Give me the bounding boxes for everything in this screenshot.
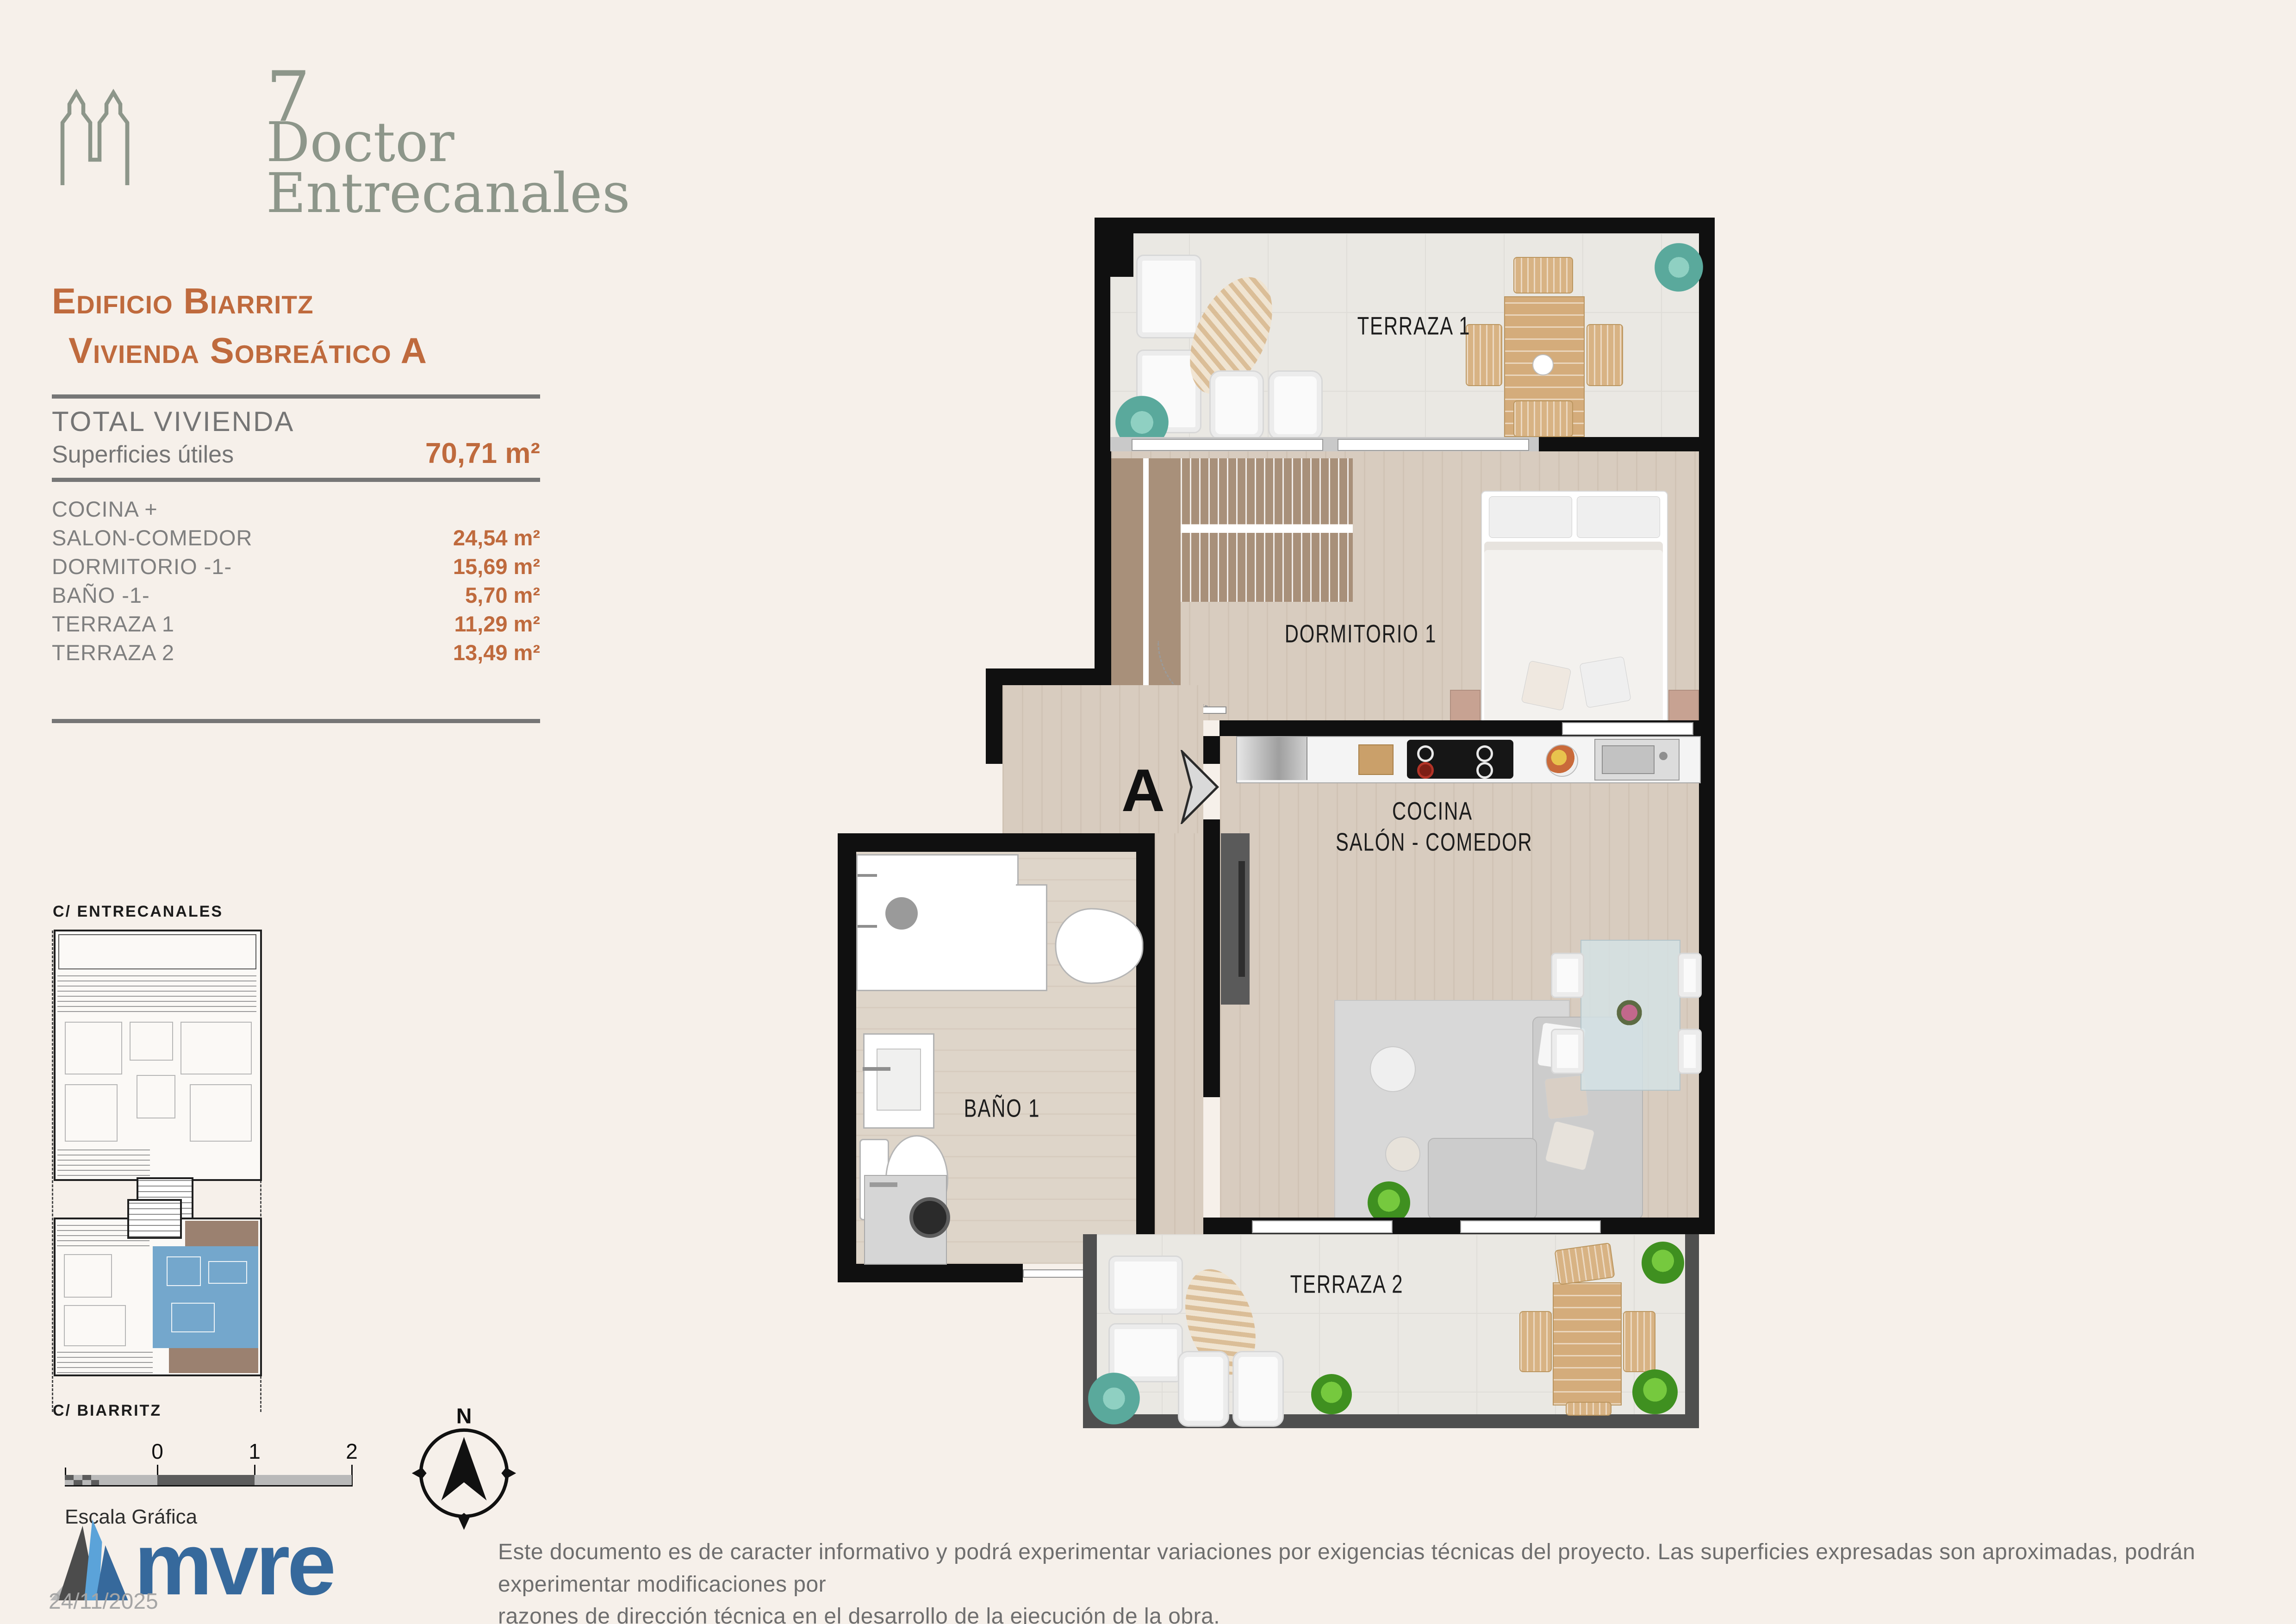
- washer-controls: [870, 1182, 897, 1187]
- sink-basin: [1602, 745, 1655, 774]
- fridge: [1237, 737, 1307, 780]
- shower-drain: [885, 897, 918, 930]
- terrace-parapet: [1685, 1234, 1699, 1428]
- room-areas-table: COCINA + SALON-COMEDOR 24,54 m² DORMITOR…: [52, 496, 540, 668]
- flower-centerpiece: [1617, 1000, 1642, 1025]
- site-room-outline: [64, 1254, 112, 1298]
- kitchen-sink: [1594, 739, 1680, 781]
- tv-screen: [1238, 861, 1245, 977]
- total-value: 70,71 m²: [52, 437, 540, 470]
- divider: [52, 478, 540, 482]
- site-building-upper: [54, 930, 262, 1181]
- site-furniture-outline: [208, 1261, 247, 1284]
- wall: [838, 833, 1155, 852]
- nightstand: [1450, 690, 1481, 722]
- outdoor-bench: [1566, 1402, 1612, 1416]
- shower-valve: [858, 925, 877, 928]
- wall: [838, 833, 856, 1282]
- unit-title: Vivienda Sobreático A: [68, 330, 427, 372]
- sofa-chaise: [1428, 1138, 1537, 1219]
- scale-tick-label: 1: [249, 1439, 261, 1464]
- site-furniture-outline: [171, 1303, 215, 1332]
- outdoor-dining-table: [1553, 1282, 1622, 1405]
- table-row: TERRAZA 2 13,49 m²: [52, 640, 540, 668]
- scale-bar: 0 1 2: [65, 1439, 361, 1499]
- window: [1132, 439, 1323, 451]
- shower-valve: [858, 874, 877, 877]
- bush: [1642, 1242, 1684, 1284]
- room-value: 15,69 m²: [453, 554, 540, 579]
- entrance-arrow-icon: [1180, 750, 1220, 824]
- site-terrace-brown: [185, 1221, 258, 1246]
- site-room-outline: [130, 1022, 173, 1061]
- tv-unit: [1221, 833, 1250, 1005]
- scale-baseline: [65, 1485, 353, 1487]
- cutting-board: [1358, 744, 1394, 775]
- wall: [1095, 218, 1715, 233]
- bano-label: BAÑO 1: [954, 1094, 1051, 1124]
- wall: [986, 668, 1111, 685]
- sun-lounger: [1232, 1351, 1284, 1427]
- room-label: BAÑO -1-: [52, 582, 150, 608]
- site-terrace-brown: [169, 1348, 258, 1373]
- site-building-lower: [54, 1218, 262, 1376]
- site-terrace-hatch: [57, 1149, 150, 1176]
- corridor-floor: [1155, 833, 1203, 1234]
- side-table: [1385, 1137, 1420, 1172]
- wardrobe: [1181, 458, 1353, 602]
- room-value: 24,54 m²: [453, 525, 540, 550]
- room-value: 5,70 m²: [465, 582, 540, 608]
- washer-door: [909, 1197, 950, 1238]
- burner-pan: [1417, 762, 1434, 779]
- faucet: [1659, 752, 1668, 760]
- outdoor-chair: [1513, 257, 1573, 294]
- mure-logo-text: mvre: [134, 1514, 333, 1615]
- outdoor-chair: [1587, 324, 1623, 386]
- site-stair-core: [127, 1199, 182, 1239]
- outdoor-chair: [1623, 1311, 1655, 1372]
- wall: [1203, 819, 1220, 1097]
- floor-plan: TERRAZA 1 DORMITORIO 1 A: [812, 218, 1715, 1430]
- sink-basin: [877, 1049, 921, 1111]
- compass-north-icon: N: [407, 1405, 521, 1532]
- burner: [1417, 745, 1434, 762]
- table-row: DORMITORIO -1- 15,69 m²: [52, 554, 540, 582]
- sun-lounger: [1209, 370, 1264, 440]
- floorplan-document: 7 Doctor Entrecanales Edificio Biarritz …: [0, 0, 2296, 1624]
- sliding-door: [1460, 1220, 1601, 1233]
- wall: [838, 1264, 1023, 1282]
- wall: [986, 685, 1002, 764]
- side-table: [1370, 1046, 1416, 1092]
- site-terrace-hatch: [57, 971, 256, 1012]
- scale-segment: [157, 1475, 255, 1485]
- shower-step: [1016, 884, 1047, 991]
- room-label: COCINA +: [52, 496, 158, 522]
- terrace-parapet: [1083, 1414, 1699, 1428]
- faucet: [863, 1067, 890, 1071]
- hall-floor: [1002, 685, 1203, 833]
- disclaimer-line2: razones de dirección técnica en el desar…: [498, 1604, 1220, 1624]
- teapot: [1532, 354, 1554, 375]
- wall: [1539, 437, 1699, 451]
- building-title: Edificio Biarritz: [52, 280, 314, 322]
- outdoor-chair: [1519, 1311, 1552, 1372]
- wall: [1095, 451, 1111, 685]
- divider: [52, 719, 540, 723]
- site-furniture-outline: [167, 1256, 201, 1286]
- site-room-outline: [190, 1084, 252, 1142]
- bush: [1311, 1374, 1352, 1415]
- bed-pillow: [1577, 496, 1660, 538]
- outdoor-chair: [1513, 400, 1573, 437]
- room-value: 13,49 m²: [453, 640, 540, 665]
- sliding-door: [1252, 1220, 1393, 1233]
- burner: [1476, 762, 1493, 779]
- bed-pillow: [1489, 496, 1572, 538]
- plot-boundary-line: [52, 931, 53, 1412]
- terraza2-label: TERRAZA 2: [1283, 1270, 1411, 1299]
- room-label: DORMITORIO -1-: [52, 554, 232, 579]
- sun-lounger: [1178, 1351, 1229, 1427]
- scale-segment: [255, 1475, 352, 1485]
- bed-cushion: [1521, 660, 1571, 711]
- street-label-top: C/ ENTRECANALES: [53, 903, 223, 921]
- cooktop: [1407, 740, 1513, 779]
- dining-chair: [1551, 953, 1584, 998]
- cocina-label-line2: SALÓN - COMEDOR: [1336, 828, 1529, 857]
- table-row: SALON-COMEDOR 24,54 m²: [52, 525, 540, 554]
- table-row: TERRAZA 1 11,29 m²: [52, 611, 540, 640]
- brand-name-line2: Entrecanales: [266, 166, 630, 220]
- site-room-outline: [65, 1022, 122, 1074]
- scale-segment-checker: [65, 1475, 99, 1485]
- total-vivienda-label: TOTAL VIVIENDA: [52, 406, 294, 437]
- washer: [864, 1175, 947, 1265]
- divider: [52, 394, 540, 399]
- date-label: 24/11/2025: [49, 1589, 158, 1614]
- site-plan: C/ ENTRECANALES: [51, 903, 264, 1440]
- site-room-outline: [65, 1084, 118, 1142]
- bed-cushion: [1579, 656, 1631, 708]
- site-room-outline: [137, 1075, 175, 1118]
- window: [1338, 439, 1529, 451]
- burner: [1476, 745, 1493, 762]
- scale-tick-label: 0: [151, 1439, 163, 1464]
- disclaimer-line1: Este documento es de caracter informativ…: [498, 1540, 2195, 1597]
- fruit-bowl: [1546, 744, 1578, 777]
- shower: [856, 854, 1019, 991]
- sun-lounger: [1268, 370, 1323, 440]
- dining-chair: [1678, 1029, 1702, 1074]
- wall: [1699, 218, 1715, 1234]
- site-room-outline: [64, 1305, 126, 1346]
- site-room-outline: [180, 1022, 252, 1074]
- wall: [1136, 833, 1155, 1264]
- armchair: [1108, 1255, 1183, 1315]
- room-value: 11,29 m²: [454, 611, 540, 637]
- table-row: BAÑO -1- 5,70 m²: [52, 582, 540, 611]
- site-terrace-hatch: [57, 1348, 153, 1373]
- table-row: COCINA +: [52, 496, 540, 525]
- street-label-bottom: C/ BIARRITZ: [53, 1402, 162, 1420]
- armchair: [1136, 255, 1201, 338]
- window: [1562, 722, 1693, 735]
- bed-duvet: [1484, 542, 1663, 725]
- scale-tick-label: 2: [346, 1439, 358, 1464]
- section-marker-a: A: [1121, 756, 1165, 825]
- dining-chair: [1551, 1029, 1584, 1074]
- scale-segment: [99, 1475, 157, 1485]
- room-label: SALON-COMEDOR: [52, 525, 252, 550]
- room-label: TERRAZA 1: [52, 611, 174, 637]
- wall: [1095, 218, 1133, 277]
- cocina-label-line1: COCINA: [1367, 797, 1499, 826]
- disclaimer-text: Este documento es de caracter informativ…: [498, 1536, 2252, 1624]
- bathroom-sink: [863, 1033, 934, 1129]
- room-label: TERRAZA 2: [52, 640, 174, 665]
- compass-north-label: N: [456, 1405, 472, 1428]
- dining-chair: [1678, 953, 1702, 998]
- nightstand: [1668, 690, 1699, 722]
- site-roof-strip: [58, 934, 256, 969]
- brand-building-icon: [58, 69, 164, 187]
- bush: [1632, 1369, 1678, 1415]
- dormitorio-label: DORMITORIO 1: [1284, 620, 1438, 649]
- terraza1-label: TERRAZA 1: [1344, 312, 1484, 341]
